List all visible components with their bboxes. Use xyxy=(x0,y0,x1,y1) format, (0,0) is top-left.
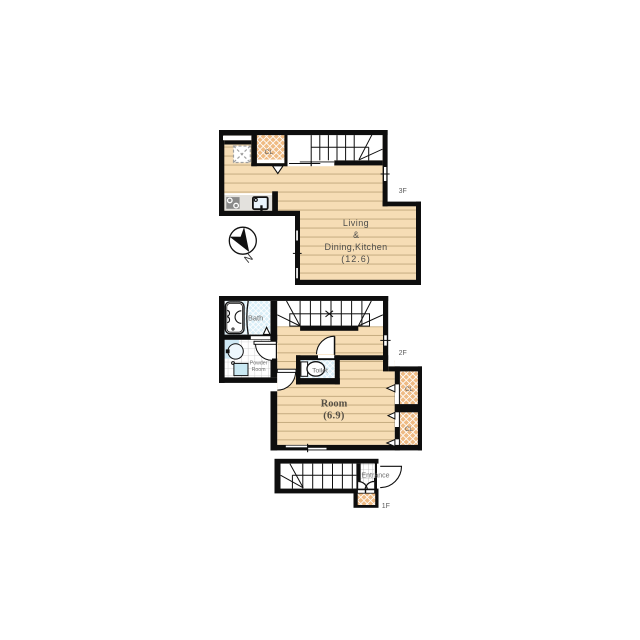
svg-text:CL: CL xyxy=(264,149,273,156)
svg-text:3F: 3F xyxy=(399,188,407,195)
svg-text:CL: CL xyxy=(405,386,413,393)
svg-text:(6.9): (6.9) xyxy=(323,411,344,422)
svg-text:2F: 2F xyxy=(399,350,407,357)
svg-text:Powder: Powder xyxy=(250,360,268,366)
svg-text:&: & xyxy=(353,230,359,240)
svg-text:Toilet: Toilet xyxy=(312,368,328,375)
svg-text:(12.6): (12.6) xyxy=(341,254,371,264)
svg-text:Entrance: Entrance xyxy=(361,472,389,479)
svg-text:Bath: Bath xyxy=(248,313,263,322)
svg-text:Room: Room xyxy=(321,399,348,410)
svg-text:Room: Room xyxy=(252,367,266,373)
svg-text:Dining,Kitchen: Dining,Kitchen xyxy=(325,242,388,252)
svg-text:1F: 1F xyxy=(382,503,390,510)
svg-text:Living: Living xyxy=(343,218,369,228)
svg-text:CL: CL xyxy=(405,426,413,433)
